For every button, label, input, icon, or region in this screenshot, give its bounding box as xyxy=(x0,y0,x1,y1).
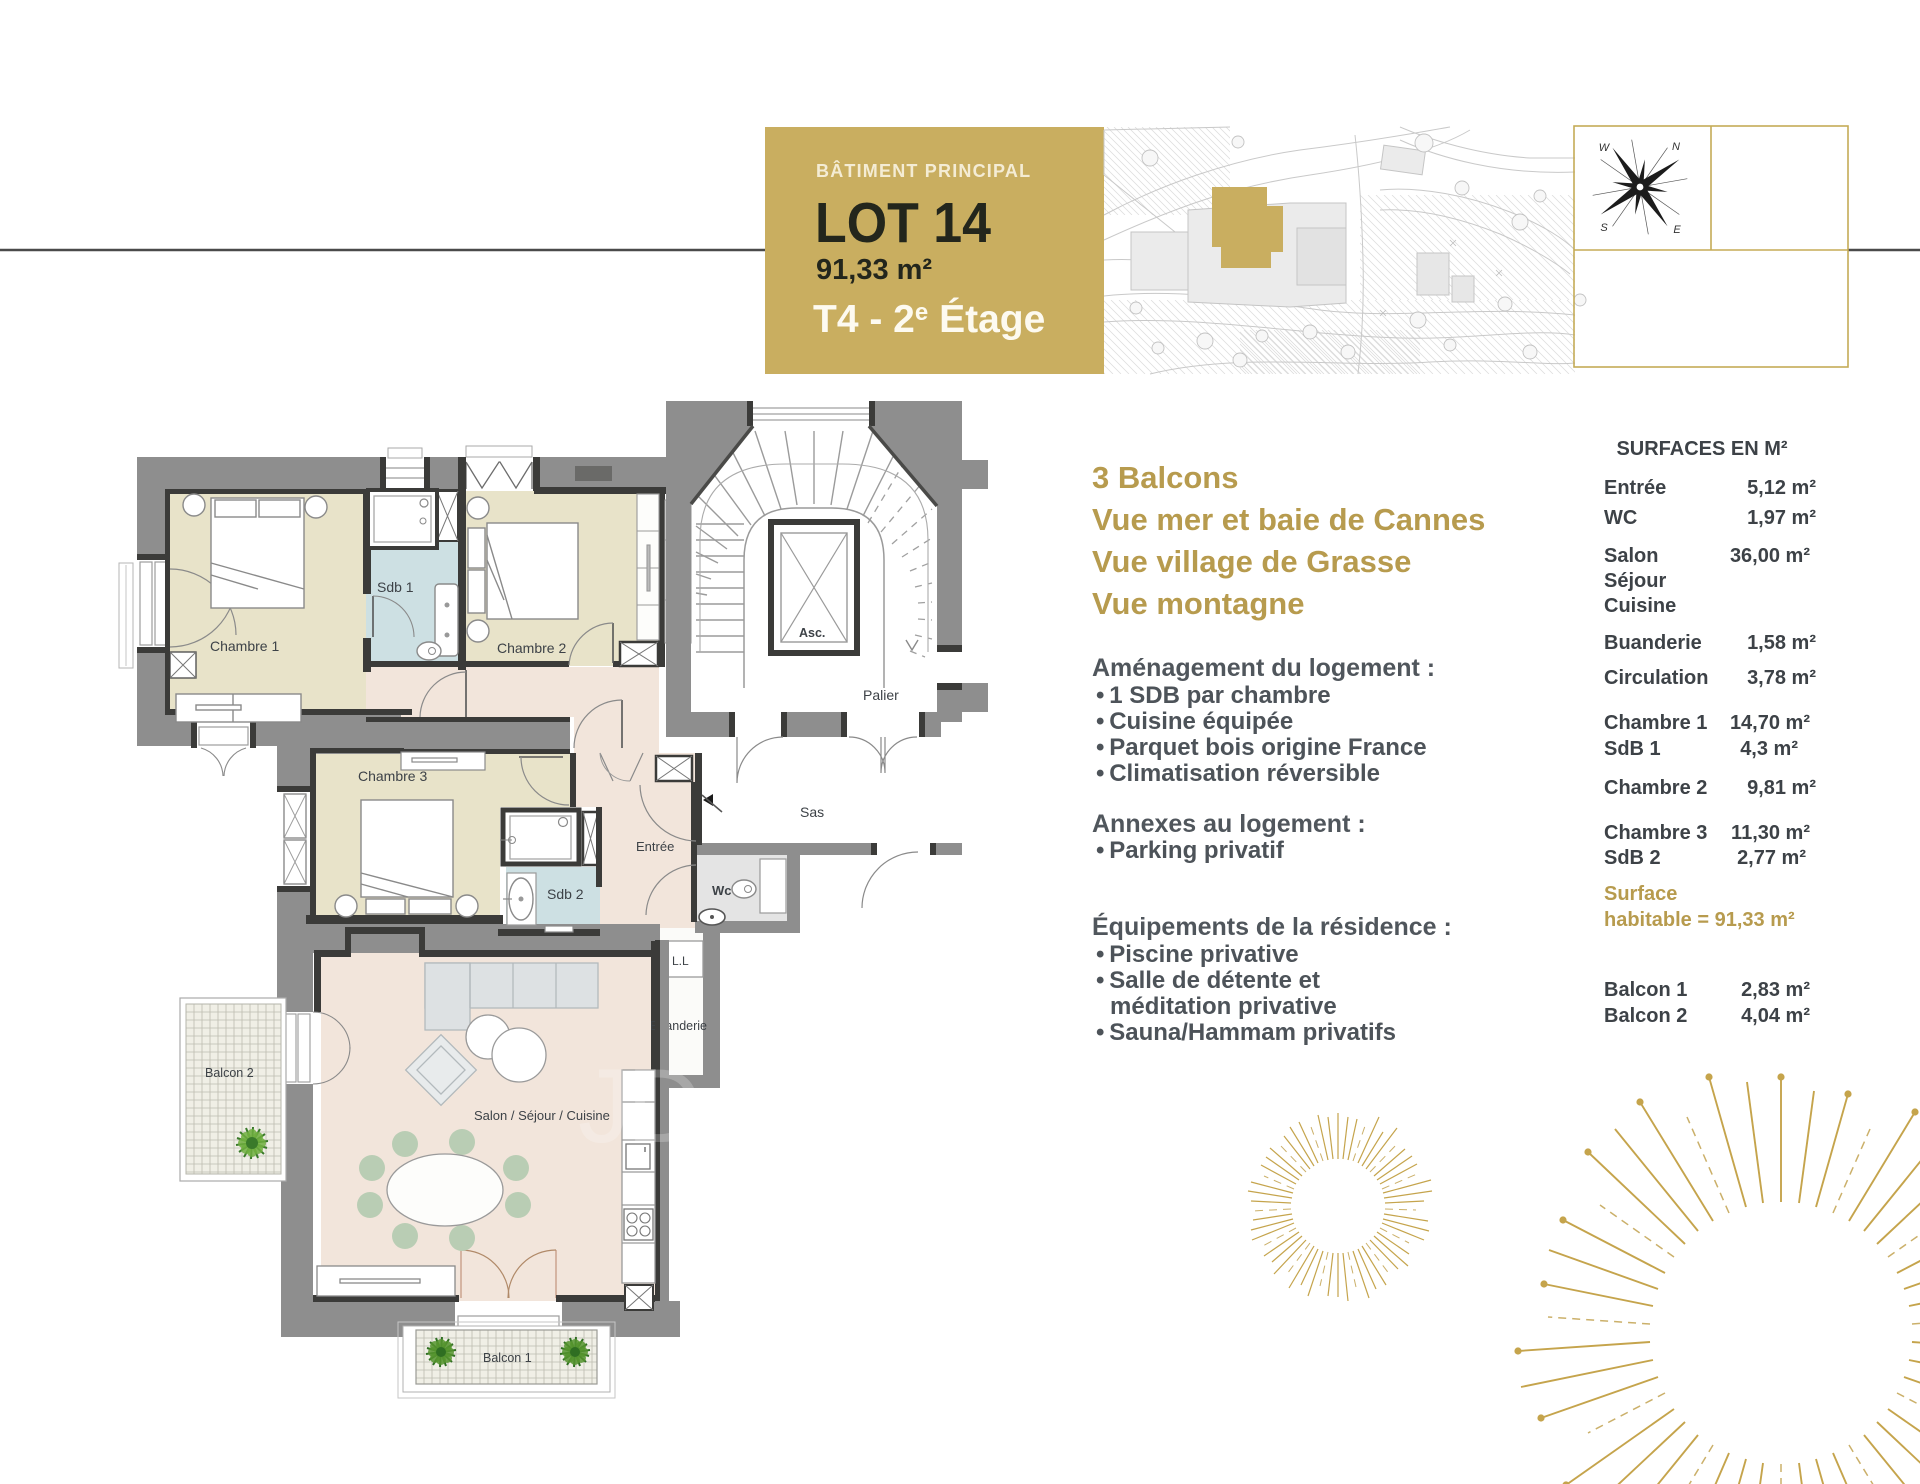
svg-text:• Salle de détente et: • Salle de détente et xyxy=(1096,967,1320,994)
svg-text:BÂTIMENT PRINCIPAL: BÂTIMENT PRINCIPAL xyxy=(816,160,1031,181)
svg-text:SdB 2: SdB 2 xyxy=(1604,847,1661,869)
svg-text:36,00 m²: 36,00 m² xyxy=(1730,545,1810,567)
svg-text:Aménagement du logement :: Aménagement du logement : xyxy=(1092,654,1435,682)
svg-text:Entrée: Entrée xyxy=(1604,477,1666,499)
svg-text:• Cuisine équipée: • Cuisine équipée xyxy=(1096,708,1293,735)
svg-text:Chambre 2: Chambre 2 xyxy=(1604,777,1707,799)
svg-text:méditation privative: méditation privative xyxy=(1110,993,1337,1020)
svg-text:1,97 m²: 1,97 m² xyxy=(1747,507,1816,529)
svg-text:SURFACES EN M²: SURFACES EN M² xyxy=(1616,438,1787,460)
svg-text:Buanderie: Buanderie xyxy=(1604,632,1702,654)
svg-text:W: W xyxy=(1599,142,1611,154)
svg-text:1,58 m²: 1,58 m² xyxy=(1747,632,1816,654)
svg-text:Vue montagne: Vue montagne xyxy=(1092,586,1304,621)
svg-text:Séjour: Séjour xyxy=(1604,570,1666,592)
svg-text:Sas: Sas xyxy=(800,804,824,820)
svg-text:• Parking privatif: • Parking privatif xyxy=(1096,837,1285,864)
svg-text:3,78 m²: 3,78 m² xyxy=(1747,667,1816,689)
svg-text:4,3 m²: 4,3 m² xyxy=(1740,738,1798,760)
svg-text:Annexes au logement :: Annexes au logement : xyxy=(1092,810,1366,838)
svg-text:Cuisine: Cuisine xyxy=(1604,595,1676,617)
svg-text:Équipements de la résidence :: Équipements de la résidence : xyxy=(1092,912,1452,941)
svg-text:Salon: Salon xyxy=(1604,545,1658,567)
svg-text:Chambre 3: Chambre 3 xyxy=(358,768,427,784)
svg-text:• Sauna/Hammam privatifs: • Sauna/Hammam privatifs xyxy=(1096,1019,1396,1046)
svg-text:Sdb 2: Sdb 2 xyxy=(547,886,584,902)
svg-text:Balcon 2: Balcon 2 xyxy=(205,1066,254,1080)
svg-text:Chambre 3: Chambre 3 xyxy=(1604,822,1707,844)
svg-text:N: N xyxy=(1672,141,1680,153)
svg-text:S: S xyxy=(1600,222,1608,234)
svg-text:• Parquet bois origine France: • Parquet bois origine France xyxy=(1096,734,1427,761)
svg-text:Circulation: Circulation xyxy=(1604,667,1708,689)
svg-text:2,83 m²: 2,83 m² xyxy=(1741,979,1810,1001)
svg-text:Surface: Surface xyxy=(1604,883,1677,905)
svg-text:11,30 m²: 11,30 m² xyxy=(1731,822,1810,844)
svg-text:Vue village de Grasse: Vue village de Grasse xyxy=(1092,544,1411,579)
svg-text:Sdb 1: Sdb 1 xyxy=(377,579,414,595)
svg-text:L.L: L.L xyxy=(672,954,689,968)
svg-text:JD: JD xyxy=(578,1048,698,1165)
svg-text:Balcon 1: Balcon 1 xyxy=(483,1351,532,1365)
svg-text:• 1 SDB par chambre: • 1 SDB par chambre xyxy=(1096,682,1331,709)
svg-text:habitable = 91,33 m²: habitable = 91,33 m² xyxy=(1604,909,1795,931)
svg-text:Entrée: Entrée xyxy=(636,839,674,854)
svg-text:14,70 m²: 14,70 m² xyxy=(1730,712,1810,734)
svg-text:• Climatisation réversible: • Climatisation réversible xyxy=(1096,760,1380,787)
svg-text:Asc.: Asc. xyxy=(799,626,825,640)
svg-text:E: E xyxy=(1673,224,1681,236)
svg-text:SdB 1: SdB 1 xyxy=(1604,738,1661,760)
svg-text:Chambre 1: Chambre 1 xyxy=(1604,712,1707,734)
svg-text:Palier: Palier xyxy=(863,687,899,703)
svg-text:Chambre 2: Chambre 2 xyxy=(497,640,566,656)
svg-text:Chambre 1: Chambre 1 xyxy=(210,638,279,654)
svg-text:LOT 14: LOT 14 xyxy=(815,191,991,255)
svg-text:• Piscine privative: • Piscine privative xyxy=(1096,941,1299,968)
svg-text:91,33 m²: 91,33 m² xyxy=(816,254,932,286)
svg-text:2,77 m²: 2,77 m² xyxy=(1737,847,1806,869)
svg-text:WC: WC xyxy=(1604,507,1637,529)
svg-text:Wc: Wc xyxy=(712,883,732,898)
svg-text:4,04 m²: 4,04 m² xyxy=(1741,1005,1810,1027)
svg-text:Vue mer et baie de Cannes: Vue mer et baie de Cannes xyxy=(1092,502,1485,537)
svg-text:5,12 m²: 5,12 m² xyxy=(1747,477,1816,499)
svg-text:T4 - 2e Étage: T4 - 2e Étage xyxy=(813,297,1045,341)
svg-text:Balcon 2: Balcon 2 xyxy=(1604,1005,1687,1027)
svg-text:Balcon 1: Balcon 1 xyxy=(1604,979,1687,1001)
svg-text:3 Balcons: 3 Balcons xyxy=(1092,460,1238,495)
svg-text:9,81 m²: 9,81 m² xyxy=(1747,777,1816,799)
